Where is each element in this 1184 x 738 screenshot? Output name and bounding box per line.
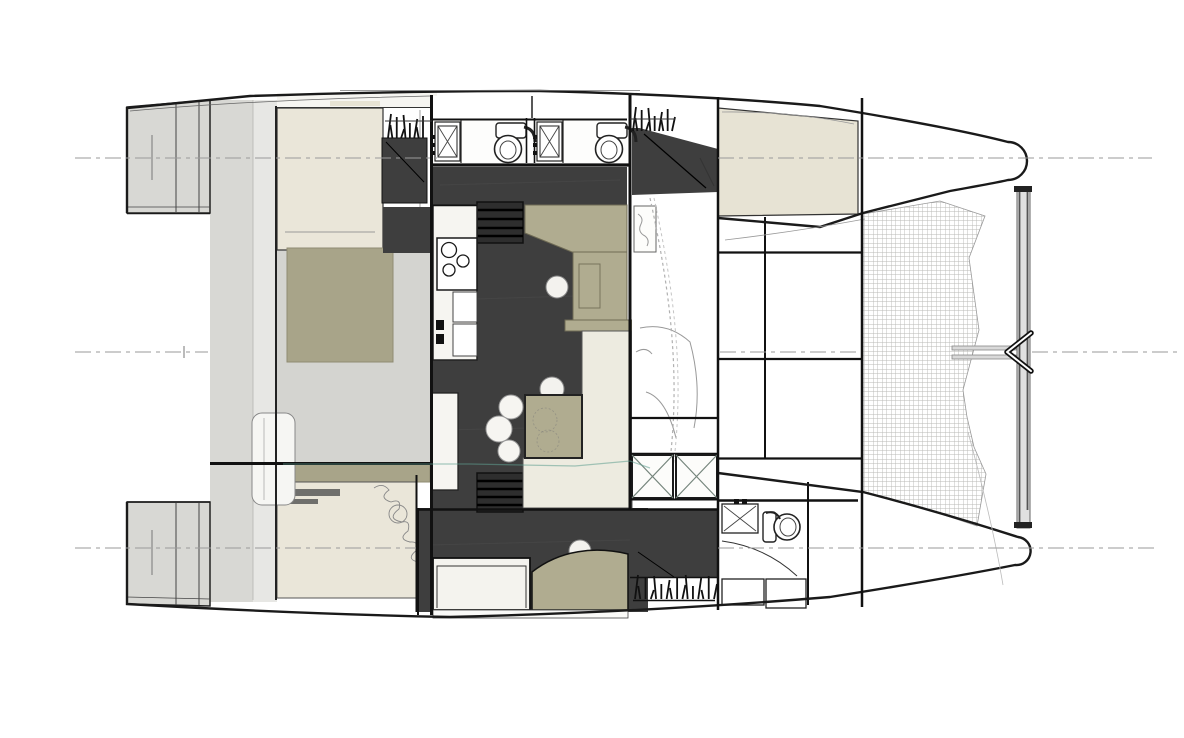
port-side-deck	[210, 100, 253, 602]
toilet-icon	[763, 512, 800, 542]
faucet-icon	[436, 334, 444, 344]
starboard-companionway-stairs	[477, 473, 523, 512]
sink-icon	[431, 122, 460, 161]
stool	[546, 276, 568, 298]
catamaran-plan-svg: Catamaran interior layout — top-view flo…	[0, 0, 1184, 738]
corridor-floor	[430, 167, 627, 205]
berth-head-end	[277, 108, 383, 250]
salon-table	[525, 395, 582, 458]
vent-slot	[288, 489, 340, 496]
burner-icon	[443, 264, 455, 276]
beam-cap	[1014, 522, 1032, 528]
locker-band	[433, 96, 627, 120]
deck-hatches	[630, 455, 718, 500]
coachroof-panel	[718, 108, 858, 216]
sink-icon	[722, 499, 758, 533]
bridle-bar	[952, 355, 1016, 359]
side-table-sketch	[634, 206, 656, 252]
forward-settee-area	[630, 195, 718, 476]
deck-trim	[330, 101, 380, 106]
inner-walkway	[253, 100, 277, 602]
burner-icon	[442, 243, 457, 258]
companionway-well	[382, 138, 427, 203]
shelf	[295, 464, 430, 482]
landing	[383, 207, 432, 253]
seat	[252, 413, 295, 505]
trampoline-mesh	[863, 201, 986, 526]
floor-plan-figure: Catamaran interior layout — top-view flo…	[0, 0, 1184, 738]
galley-cabinet-forward	[432, 393, 458, 490]
port-companionway-stairs	[477, 202, 523, 243]
faucet-icon	[436, 320, 444, 330]
galley-sink-icon	[453, 292, 477, 322]
sideboard	[565, 320, 632, 331]
burner-icon	[457, 255, 469, 267]
entry-floor	[630, 510, 718, 578]
hull-step	[766, 579, 806, 608]
beam-cap	[1014, 186, 1032, 192]
galley-cabinet	[453, 324, 477, 356]
sink-icon	[533, 122, 562, 161]
mattress	[287, 248, 393, 362]
port-transom-steps	[127, 100, 210, 213]
starboard-transom-steps	[127, 502, 210, 606]
hull-step	[722, 579, 764, 605]
